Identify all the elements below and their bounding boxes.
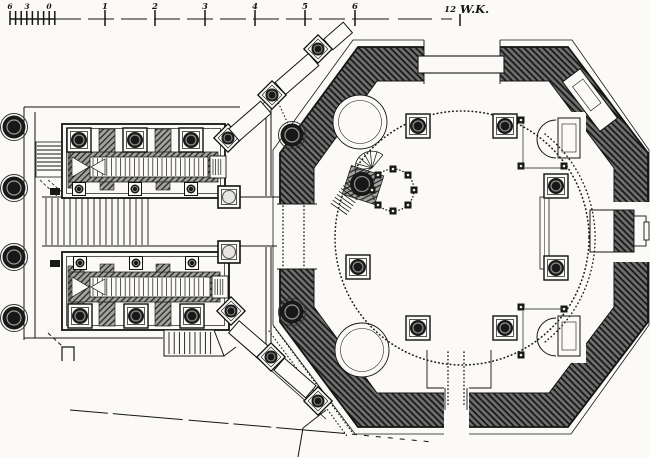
portico-column	[1, 114, 28, 141]
hall-small-column	[130, 257, 143, 270]
scale-unit-label: W.K.	[460, 2, 489, 16]
portico-column	[1, 175, 28, 202]
hall-small-column	[73, 183, 86, 196]
scale-major-label: 4	[252, 2, 258, 12]
rotunda-pier	[493, 114, 517, 138]
west-entrance	[277, 204, 317, 269]
northwest-exedra	[333, 95, 387, 149]
scale-sub-label: 6	[7, 2, 13, 11]
side-stair-frame	[36, 142, 62, 177]
rotunda-pier	[544, 174, 568, 198]
hall-small-column	[186, 257, 199, 270]
exterior-stair	[164, 330, 224, 356]
southeast-niche-bay	[518, 304, 587, 364]
freestanding-pier	[218, 241, 240, 263]
scale-major-label: 6	[352, 2, 358, 12]
hall-ramp	[90, 157, 208, 177]
side-stair-treads	[37, 146, 61, 170]
scale-major-label: 1	[102, 2, 108, 12]
hall-small-column	[129, 183, 142, 196]
scale-end-number: 12	[444, 5, 456, 15]
scale-major-label: 2	[151, 2, 158, 12]
hall-column	[124, 304, 148, 328]
west-corner-column	[279, 299, 306, 326]
floor-plan-engraving: 6 3 0 1 2 3 4 5 6 12 W.K.	[0, 0, 650, 458]
hall-column	[68, 304, 92, 328]
rotunda-pier	[406, 316, 430, 340]
hall-column	[67, 128, 91, 152]
mihrab-block	[614, 210, 634, 252]
scale-sub-label: 0	[46, 2, 52, 11]
cross-pier	[155, 129, 171, 153]
rotunda-pier	[346, 255, 370, 279]
portico-column	[1, 305, 28, 332]
northeast-niche-bay	[518, 112, 587, 170]
south-hall	[62, 252, 229, 330]
cross-pier	[99, 129, 115, 153]
rotunda-pier	[493, 316, 517, 340]
west-corner-column	[279, 122, 306, 149]
rotunda-pier	[544, 256, 568, 280]
cross-pier	[99, 302, 115, 326]
north-threshold	[418, 56, 504, 73]
floor-plan-page: 6 3 0 1 2 3 4 5 6 12 W.K.	[0, 0, 650, 458]
hall-column	[123, 128, 147, 152]
hall-column	[180, 304, 204, 328]
hall-small-column	[185, 183, 198, 196]
north-hall	[62, 124, 226, 198]
cross-pier	[155, 302, 171, 326]
north-entrance	[418, 36, 504, 84]
hall-ramp	[90, 277, 210, 297]
freestanding-pier	[218, 186, 240, 208]
southwest-exedra	[335, 323, 389, 377]
hall-small-column	[74, 257, 87, 270]
rotunda-pier	[406, 114, 430, 138]
scale-sub-label: 3	[24, 2, 29, 11]
scale-major-label: 5	[302, 2, 308, 12]
portico-column	[1, 244, 28, 271]
scale-major-label: 3	[202, 2, 208, 12]
hall-column	[179, 128, 203, 152]
